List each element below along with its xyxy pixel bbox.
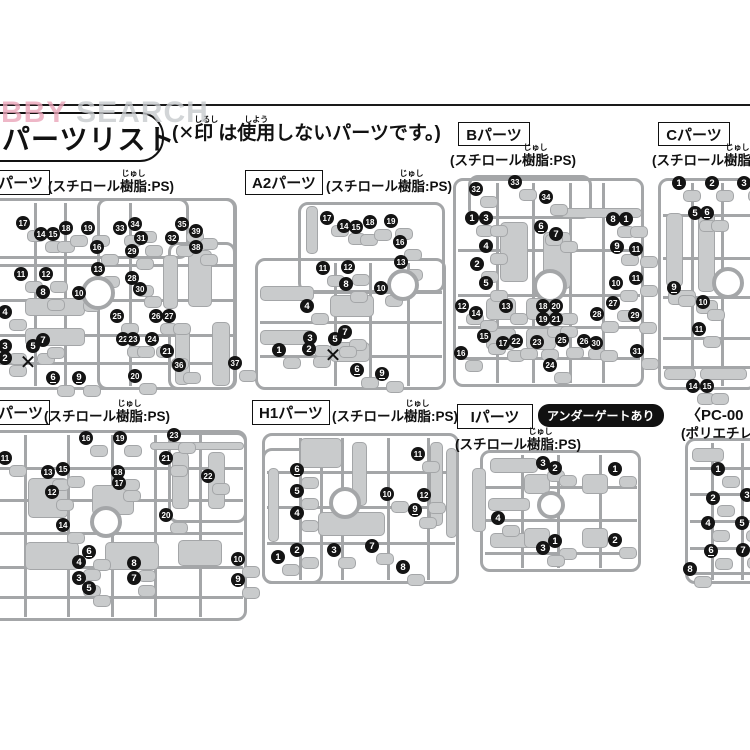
material-label: (スチロールじゅし樹脂:PS) bbox=[48, 170, 174, 196]
part-number: 9 bbox=[671, 283, 676, 294]
usage-note: (✕しるし印はしよう使用しないパーツです。) bbox=[172, 116, 441, 144]
part-number: 12 bbox=[42, 270, 51, 279]
part-number-badge: 22 bbox=[509, 334, 523, 348]
part-blob bbox=[83, 385, 101, 397]
part-number: 23 bbox=[170, 431, 179, 440]
watermark: HOBBY SEARCH bbox=[0, 96, 209, 130]
part-number-badge: 22 bbox=[201, 469, 215, 483]
part-number: 12 bbox=[420, 491, 429, 500]
part-number-badge: 9 bbox=[408, 503, 422, 517]
part-blob bbox=[136, 258, 154, 270]
part-number: 2 bbox=[474, 259, 479, 270]
part-blob bbox=[212, 322, 230, 386]
part-number-badge: 2 bbox=[548, 461, 562, 475]
part-blob bbox=[683, 190, 701, 202]
part-number-badge: 21 bbox=[159, 451, 173, 465]
part-blob bbox=[57, 385, 75, 397]
part-number: 3 bbox=[744, 490, 749, 501]
part-blob bbox=[419, 517, 437, 529]
part-number-badge: 9 bbox=[375, 367, 389, 381]
part-number: 34 bbox=[131, 220, 140, 229]
part-number: 8 bbox=[610, 214, 615, 225]
part-number: 12 bbox=[458, 302, 467, 311]
part-blob bbox=[212, 483, 230, 495]
part-number-badge: 10 bbox=[696, 295, 710, 309]
part-blob bbox=[391, 501, 409, 513]
part-number-badge: 5 bbox=[735, 516, 749, 530]
part-number-badge: 37 bbox=[228, 356, 242, 370]
ruby-text: じゅし樹脂 bbox=[404, 400, 431, 426]
part-number: 26 bbox=[580, 337, 589, 346]
part-blob bbox=[70, 235, 88, 247]
part-blob bbox=[56, 499, 74, 511]
part-number: 12 bbox=[344, 263, 353, 272]
part-number-badge: 7 bbox=[36, 333, 50, 347]
part-number-badge: 36 bbox=[172, 358, 186, 372]
watermark-gray: SEARCH bbox=[67, 96, 209, 129]
part-number-badge: 34 bbox=[128, 217, 142, 231]
part-blob bbox=[67, 476, 85, 488]
part-number-badge: 14 bbox=[469, 306, 483, 320]
part-number-badge: 1 bbox=[272, 343, 286, 357]
part-number: 6 bbox=[86, 547, 91, 558]
material-label: (スチロールじゅし樹脂:PS) bbox=[455, 428, 581, 454]
part-number: 7 bbox=[553, 229, 558, 240]
part-number: 19 bbox=[387, 217, 396, 226]
part-number: 2 bbox=[294, 545, 299, 556]
part-number: 20 bbox=[552, 302, 561, 311]
part-number-badge: 15 bbox=[56, 462, 70, 476]
part-number-badge: 13 bbox=[394, 255, 408, 269]
part-number-badge: 32 bbox=[165, 231, 179, 245]
part-blob bbox=[520, 348, 538, 360]
part-blob bbox=[547, 555, 565, 567]
part-blob bbox=[282, 564, 300, 576]
part-blob bbox=[137, 346, 155, 358]
part-number-badge: 7 bbox=[549, 227, 563, 241]
part-number-badge: 38 bbox=[189, 240, 203, 254]
part-blob bbox=[173, 323, 191, 335]
part-blob bbox=[582, 528, 608, 548]
part-number: 6 bbox=[538, 222, 543, 233]
part-number-badge: 13 bbox=[41, 465, 55, 479]
part-blob bbox=[178, 442, 196, 454]
part-number-badge: 6 bbox=[700, 206, 714, 220]
part-number-badge: 4 bbox=[701, 516, 715, 530]
material-label: (スチロールじゅし樹脂:PS) bbox=[44, 400, 170, 426]
plain-text: :PS) bbox=[554, 436, 581, 454]
runner-line bbox=[0, 532, 243, 535]
part-blob bbox=[711, 220, 729, 232]
plain-text: (スチロール bbox=[48, 178, 120, 196]
part-number-badge: 1 bbox=[465, 211, 479, 225]
plain-text: :PS) bbox=[549, 152, 576, 170]
part-blob bbox=[422, 461, 440, 473]
part-number: 32 bbox=[472, 185, 481, 194]
part-blob bbox=[600, 350, 618, 362]
part-blob bbox=[716, 190, 734, 202]
part-number: 8 bbox=[400, 562, 405, 573]
part-number-badge: 9 bbox=[610, 240, 624, 254]
part-number: 19 bbox=[84, 224, 93, 233]
part-blob bbox=[242, 566, 260, 578]
pc-label-line: (ポリエチレン bbox=[681, 422, 750, 442]
part-number: 15 bbox=[480, 332, 489, 341]
part-number: 25 bbox=[558, 336, 567, 345]
material-label: (スチロールじゅし樹脂:PS) bbox=[450, 144, 576, 170]
part-number-badge: 3 bbox=[737, 176, 750, 190]
part-number-badge: 8 bbox=[36, 285, 50, 299]
part-blob bbox=[178, 540, 222, 566]
part-number-badge: 1 bbox=[619, 212, 633, 226]
part-blob bbox=[465, 360, 483, 372]
part-number: 6 bbox=[294, 465, 299, 476]
part-number-badge: 10 bbox=[72, 286, 86, 300]
part-blob bbox=[183, 372, 201, 384]
runner-hub bbox=[537, 491, 565, 519]
part-blob bbox=[301, 557, 319, 569]
part-number: 16 bbox=[457, 349, 466, 358]
parts-list-page: HOBBY SEARCH パーツリスト (✕しるし印はしよう使用しないパーツです… bbox=[0, 0, 750, 750]
part-blob bbox=[301, 520, 319, 532]
part-number-badge: 21 bbox=[549, 312, 563, 326]
part-number: 24 bbox=[148, 335, 157, 344]
part-number: 8 bbox=[687, 564, 692, 575]
part-number: 16 bbox=[82, 434, 91, 443]
runner-hub bbox=[81, 276, 115, 310]
part-blob bbox=[9, 319, 27, 331]
section-label: パーツ bbox=[0, 170, 50, 195]
part-blob bbox=[502, 525, 520, 537]
part-blob bbox=[139, 383, 157, 395]
part-blob bbox=[639, 322, 657, 334]
part-blob bbox=[170, 465, 188, 477]
section-label: A2パーツ bbox=[245, 170, 323, 195]
part-number-badge: 3 bbox=[740, 488, 750, 502]
runner-hub bbox=[329, 487, 361, 519]
plain-text: は bbox=[218, 124, 237, 144]
part-number-badge: 4 bbox=[72, 555, 86, 569]
part-number: 13 bbox=[397, 258, 406, 267]
part-number: 4 bbox=[495, 513, 500, 524]
plain-text: :PS) bbox=[147, 178, 174, 196]
part-number-badge: 17 bbox=[112, 476, 126, 490]
part-number: 1 bbox=[552, 536, 557, 547]
part-number: 10 bbox=[234, 555, 243, 564]
part-number-badge: 10 bbox=[374, 281, 388, 295]
runner-line bbox=[199, 435, 202, 617]
part-number: 17 bbox=[19, 219, 28, 228]
part-number-badge: 8 bbox=[606, 212, 620, 226]
ruby-text: じゅし樹脂 bbox=[398, 170, 425, 196]
part-blob bbox=[283, 357, 301, 369]
part-number-badge: 24 bbox=[145, 332, 159, 346]
part-number-badge: 11 bbox=[411, 447, 425, 461]
part-number-badge: 6 bbox=[290, 463, 304, 477]
part-number-badge: 2 bbox=[302, 342, 316, 356]
part-number-badge: 25 bbox=[110, 309, 124, 323]
part-blob bbox=[560, 241, 578, 253]
material-label: (スチロールじゅし樹脂:PS) bbox=[332, 400, 458, 426]
part-number: 10 bbox=[383, 490, 392, 499]
part-number-badge: 6 bbox=[350, 363, 364, 377]
part-number-badge: 28 bbox=[590, 307, 604, 321]
part-blob bbox=[715, 558, 733, 570]
part-blob bbox=[301, 498, 319, 510]
plain-text: :PS) bbox=[143, 408, 170, 426]
part-number: 10 bbox=[377, 284, 386, 293]
part-number: 7 bbox=[740, 545, 745, 556]
part-number: 7 bbox=[131, 573, 136, 584]
part-number: 3 bbox=[76, 573, 81, 584]
part-number: 11 bbox=[414, 450, 422, 459]
part-number: 13 bbox=[44, 468, 53, 477]
part-number-badge: 18 bbox=[59, 221, 73, 235]
part-number-badge: 5 bbox=[82, 581, 96, 595]
ruby-text: じゅし樹脂 bbox=[120, 170, 147, 196]
part-number: 18 bbox=[366, 218, 375, 227]
part-number-badge: 8 bbox=[396, 560, 410, 574]
part-blob bbox=[352, 274, 370, 286]
ruby-text: じゅし樹脂 bbox=[527, 428, 554, 454]
plain-text: (スチロール bbox=[326, 178, 398, 196]
part-number: 11 bbox=[632, 274, 640, 283]
part-number: 3 bbox=[2, 341, 7, 352]
part-blob bbox=[554, 372, 572, 384]
part-number: 8 bbox=[343, 279, 348, 290]
runner-line bbox=[129, 203, 132, 386]
part-number: 4 bbox=[483, 241, 488, 252]
part-number-badge: 35 bbox=[175, 217, 189, 231]
part-number: 18 bbox=[62, 224, 71, 233]
part-number: 4 bbox=[304, 301, 309, 312]
part-number: 20 bbox=[131, 372, 140, 381]
part-blob bbox=[311, 313, 329, 325]
part-number: 27 bbox=[165, 312, 174, 321]
part-number-badge: 26 bbox=[149, 309, 163, 323]
part-number-badge: 3 bbox=[536, 541, 550, 555]
part-number-badge: 5 bbox=[328, 332, 342, 346]
part-number-badge: 2 bbox=[705, 176, 719, 190]
part-number-badge: 30 bbox=[589, 336, 603, 350]
part-blob bbox=[641, 358, 659, 370]
part-number: 7 bbox=[40, 335, 45, 346]
part-blob bbox=[480, 196, 498, 208]
part-blob bbox=[640, 285, 658, 297]
part-number: 39 bbox=[192, 227, 201, 236]
part-number: 31 bbox=[633, 347, 642, 356]
undergate-badge: アンダーゲートあり bbox=[538, 404, 664, 427]
part-blob bbox=[746, 530, 750, 542]
part-number: 28 bbox=[128, 274, 137, 283]
part-number: 1 bbox=[676, 178, 681, 189]
part-number-badge: 15 bbox=[349, 220, 363, 234]
part-number-badge: 29 bbox=[125, 244, 139, 258]
part-number: 9 bbox=[412, 505, 417, 516]
part-number-badge: 24 bbox=[543, 358, 557, 372]
part-number: 13 bbox=[502, 302, 511, 311]
part-blob bbox=[707, 309, 725, 321]
part-number: 31 bbox=[137, 234, 146, 243]
part-number: 25 bbox=[113, 312, 122, 321]
part-number: 1 bbox=[623, 214, 628, 225]
part-blob bbox=[582, 474, 608, 494]
part-blob bbox=[428, 502, 446, 514]
part-blob bbox=[630, 226, 648, 238]
ruby-text: じゅし樹脂 bbox=[116, 400, 143, 426]
part-number: 9 bbox=[614, 242, 619, 253]
part-number: 15 bbox=[352, 223, 361, 232]
part-blob bbox=[722, 476, 740, 488]
part-number: 22 bbox=[512, 337, 521, 346]
part-blob bbox=[490, 225, 508, 237]
part-blob bbox=[242, 587, 260, 599]
part-number: 23 bbox=[129, 335, 138, 344]
part-number: 11 bbox=[632, 245, 640, 254]
runner-line bbox=[0, 596, 243, 599]
part-blob bbox=[620, 290, 638, 302]
part-number-badge: 9 bbox=[231, 573, 245, 587]
part-blob bbox=[619, 476, 637, 488]
part-number: 32 bbox=[168, 234, 177, 243]
part-number-badge: 16 bbox=[393, 235, 407, 249]
part-number: 7 bbox=[369, 541, 374, 552]
part-number: 4 bbox=[2, 307, 7, 318]
part-number: 15 bbox=[59, 465, 68, 474]
section-label: Iパーツ bbox=[457, 404, 533, 429]
runner-line bbox=[690, 572, 750, 575]
part-number: 17 bbox=[499, 339, 508, 348]
part-blob bbox=[407, 574, 425, 586]
part-blob bbox=[619, 547, 637, 559]
part-number: 17 bbox=[323, 214, 332, 223]
part-number-badge: 27 bbox=[162, 309, 176, 323]
part-number-badge: 30 bbox=[133, 282, 147, 296]
part-number-badge: 21 bbox=[160, 344, 174, 358]
part-number-badge: 13 bbox=[499, 299, 513, 313]
part-blob bbox=[9, 465, 27, 477]
plain-text: (スチロール bbox=[44, 408, 116, 426]
part-number-badge: 23 bbox=[530, 335, 544, 349]
part-number: 14 bbox=[37, 230, 46, 239]
part-blob bbox=[712, 530, 730, 542]
part-number: 4 bbox=[76, 557, 81, 568]
part-number-badge: 17 bbox=[496, 336, 510, 350]
part-number-badge: 7 bbox=[365, 539, 379, 553]
watermark-pink: HOBBY bbox=[0, 96, 67, 129]
part-blob bbox=[47, 299, 65, 311]
part-number: 14 bbox=[59, 521, 68, 530]
part-blob bbox=[703, 336, 721, 348]
plain-text: しないパーツです。) bbox=[275, 124, 441, 144]
runner-hub bbox=[712, 267, 744, 299]
part-blob bbox=[386, 381, 404, 393]
part-number: 20 bbox=[162, 511, 171, 520]
plain-text: :PS) bbox=[431, 408, 458, 426]
part-number: 9 bbox=[76, 373, 81, 384]
part-number-badge: 4 bbox=[491, 511, 505, 525]
part-number-badge: 18 bbox=[363, 215, 377, 229]
part-number-badge: 9 bbox=[72, 371, 86, 385]
part-number: 16 bbox=[93, 243, 102, 252]
part-number: 2 bbox=[710, 493, 715, 504]
part-number-badge: 31 bbox=[630, 344, 644, 358]
part-number: 2 bbox=[2, 353, 7, 364]
part-number-badge: 3 bbox=[479, 211, 493, 225]
plain-text: (スチロール bbox=[450, 152, 522, 170]
part-number-badge: 17 bbox=[16, 216, 30, 230]
part-number: 11 bbox=[695, 325, 703, 334]
part-number-badge: 12 bbox=[341, 260, 355, 274]
part-number-badge: 4 bbox=[479, 239, 493, 253]
part-number: 23 bbox=[533, 338, 542, 347]
part-number: 19 bbox=[539, 315, 548, 324]
part-number-badge: 23 bbox=[126, 332, 140, 346]
part-blob bbox=[300, 438, 342, 468]
part-blob bbox=[559, 475, 577, 487]
part-number: 4 bbox=[294, 508, 299, 519]
part-blob bbox=[163, 255, 178, 309]
part-number-badge: 15 bbox=[477, 329, 491, 343]
part-blob bbox=[490, 458, 538, 473]
part-number-badge: 5 bbox=[290, 484, 304, 498]
part-number-badge: 19 bbox=[536, 312, 550, 326]
part-number-badge: 14 bbox=[686, 379, 700, 393]
part-blob bbox=[25, 542, 79, 570]
part-number-badge: 29 bbox=[628, 308, 642, 322]
part-number: 2 bbox=[552, 463, 557, 474]
part-number: 12 bbox=[48, 488, 57, 497]
part-number: 21 bbox=[552, 315, 561, 324]
part-number: 5 bbox=[483, 278, 488, 289]
part-blob bbox=[550, 204, 568, 216]
plain-text: (スチロール bbox=[652, 152, 724, 170]
part-number-badge: 1 bbox=[608, 462, 622, 476]
ruby-text: しよう使用 bbox=[237, 116, 275, 144]
part-number: 6 bbox=[354, 365, 359, 376]
part-blob bbox=[446, 448, 457, 538]
part-number-badge: 6 bbox=[534, 220, 548, 234]
part-number-badge: 8 bbox=[127, 556, 141, 570]
part-number-badge: 1 bbox=[548, 534, 562, 548]
runner-hub bbox=[387, 269, 419, 301]
part-number: 36 bbox=[175, 361, 184, 370]
part-blob bbox=[268, 468, 279, 542]
part-number: 1 bbox=[715, 464, 720, 475]
part-blob bbox=[374, 229, 392, 241]
part-blob bbox=[601, 321, 619, 333]
plain-text: (スチロール bbox=[455, 436, 527, 454]
part-number: 1 bbox=[275, 552, 280, 563]
part-number-badge: 17 bbox=[320, 211, 334, 225]
part-number-badge: 15 bbox=[46, 227, 60, 241]
part-number: 24 bbox=[546, 361, 555, 370]
not-used-cross-icon: ✕ bbox=[325, 346, 342, 366]
part-number: 33 bbox=[511, 178, 520, 187]
part-blob bbox=[301, 477, 319, 489]
part-number-badge: 15 bbox=[700, 379, 714, 393]
part-blob bbox=[172, 452, 189, 509]
part-number: 34 bbox=[542, 193, 551, 202]
part-number-badge: 27 bbox=[606, 296, 620, 310]
part-number: 15 bbox=[703, 382, 712, 391]
part-number: 6 bbox=[50, 373, 55, 384]
part-number: 9 bbox=[379, 369, 384, 380]
part-number-badge: 39 bbox=[189, 224, 203, 238]
part-number: 6 bbox=[708, 546, 713, 557]
part-number-badge: 1 bbox=[672, 176, 686, 190]
part-number-badge: 19 bbox=[113, 431, 127, 445]
